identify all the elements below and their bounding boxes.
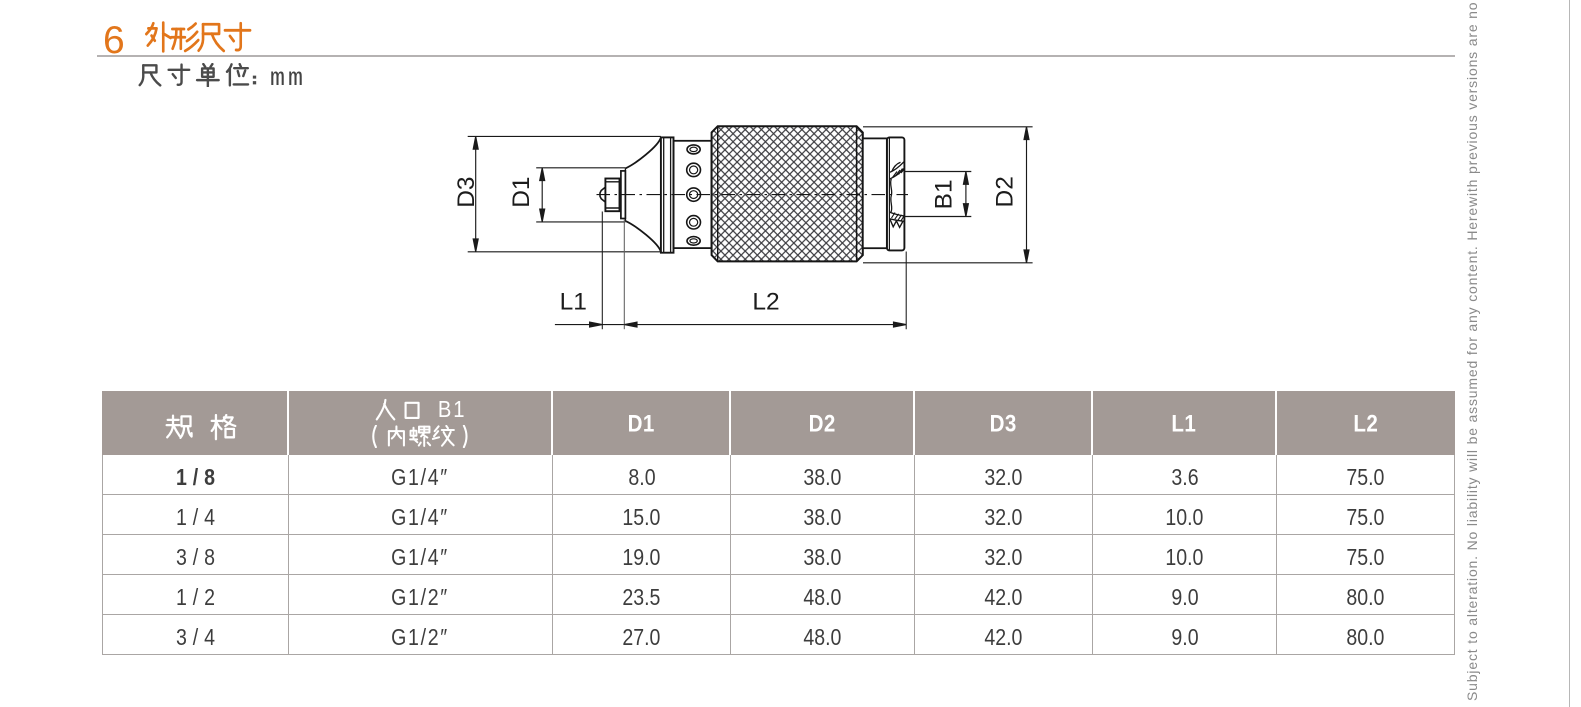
svg-text:L1: L1 bbox=[560, 289, 587, 316]
svg-text:L2: L2 bbox=[752, 289, 779, 316]
svg-text:D1: D1 bbox=[508, 176, 535, 207]
svg-text:B1: B1 bbox=[930, 179, 957, 209]
svg-text:D3: D3 bbox=[453, 176, 480, 207]
svg-text:D2: D2 bbox=[991, 176, 1018, 207]
